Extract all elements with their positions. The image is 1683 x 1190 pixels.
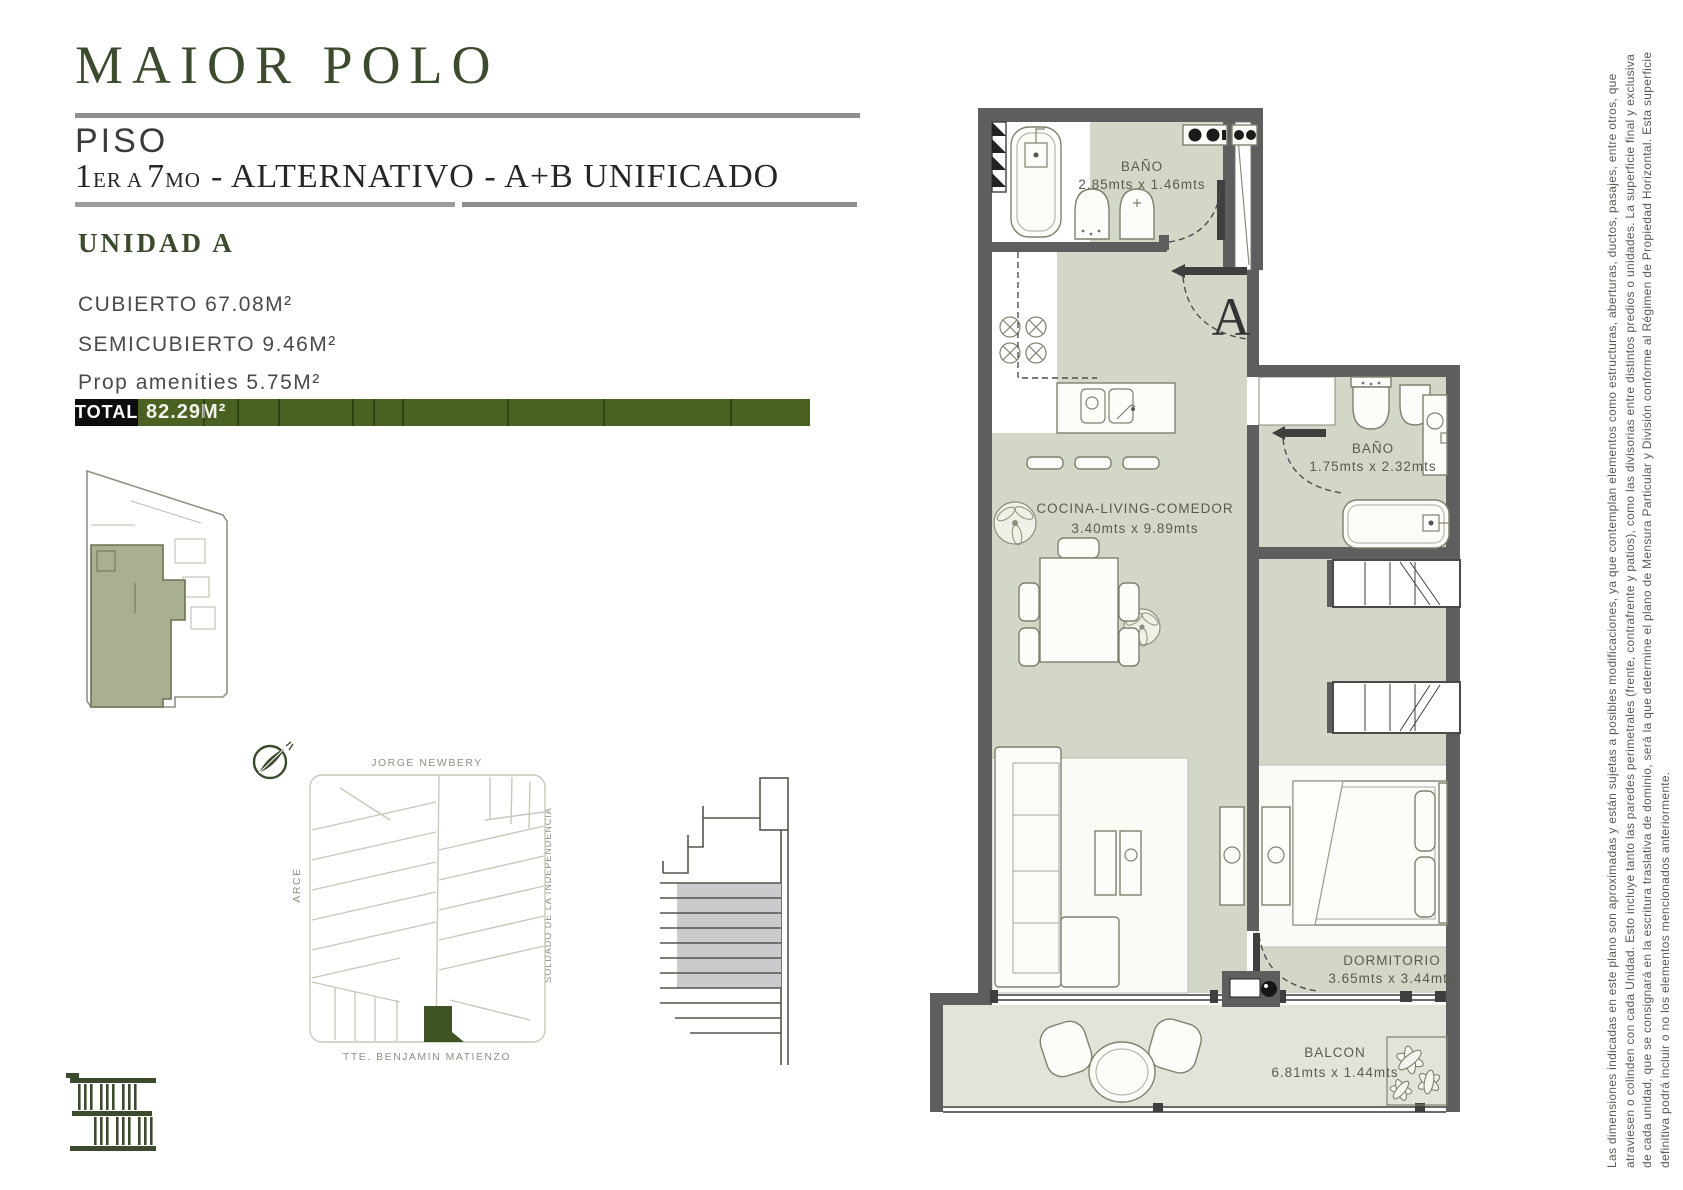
bar-separator (507, 399, 509, 426)
floor-plan: BAÑO 2.85mts x 1.46mts A (895, 85, 1470, 1130)
parcel-lines-bottom (312, 982, 400, 1041)
disclaimer-line: atraviesen o colinden con cada Unidad. E… (1622, 23, 1640, 1168)
kitchen-counter (992, 252, 1057, 433)
city-block (310, 775, 545, 1042)
bedroom-dims: 3.65mts x 3.44mts (1328, 971, 1455, 986)
disclaimer-line: de cada unidad, que se consignará en la … (1639, 23, 1657, 1168)
bar-separator (730, 399, 732, 426)
legal-disclaimer: Las dimensiones indicadas en este plano … (1604, 23, 1674, 1168)
bar-separator (402, 399, 404, 426)
unit-location-thumbnail (75, 455, 275, 745)
bath2-dims: 1.75mts x 2.32mts (1309, 459, 1436, 474)
section-right-wall (781, 830, 788, 1065)
stool (1027, 457, 1063, 469)
wardrobe (1333, 560, 1460, 607)
dining-table (1040, 558, 1118, 662)
chair (1119, 583, 1139, 621)
bedroom-label: DORMITORIO (1343, 953, 1441, 968)
street-top-label: JORGE NEWBERY (371, 757, 483, 769)
chair (1019, 583, 1039, 621)
logo-row2 (94, 1117, 153, 1145)
total-area-bar: TOTAL 82.29M² (75, 399, 810, 426)
chair (1119, 628, 1139, 666)
entry-door-leaf (1181, 267, 1247, 275)
toilet (1075, 189, 1109, 239)
service-shaft (992, 122, 1006, 192)
subtitle-divider-left (75, 202, 455, 207)
floor-range-subtitle: 1ER A7MO- ALTERNATIVO - A+B UNIFICADO (75, 158, 779, 196)
bath2-vestibule (1259, 377, 1335, 425)
laundry-appliances (1183, 125, 1257, 145)
bath1-label: BAÑO (1121, 159, 1163, 174)
kitchen-living-label: COCINA-LIVING-COMEDOR (1036, 501, 1233, 516)
wardrobe (1333, 682, 1460, 733)
disclaimer-line: Las dimensiones indicadas en este plano … (1604, 23, 1622, 1168)
stool (1123, 457, 1159, 469)
bar-separator (352, 399, 354, 426)
compass-icon (254, 742, 293, 778)
stool (1075, 457, 1111, 469)
bath1-dims: 2.85mts x 1.46mts (1078, 177, 1205, 192)
subtitle-divider-right (462, 202, 857, 207)
sofa-chaise (1061, 917, 1119, 987)
kitchen-island (1057, 383, 1175, 433)
section-steps (663, 818, 760, 873)
header-divider (75, 113, 860, 118)
section-tower (760, 778, 788, 830)
brand-title: MAIOR POLO (75, 34, 500, 96)
logo-row1 (78, 1084, 137, 1110)
bidet (1120, 189, 1154, 239)
bar-separator (203, 399, 205, 426)
kitchen-living-dims: 3.40mts x 9.89mts (1071, 521, 1198, 536)
unit-letter: A (1212, 287, 1251, 347)
disclaimer-line: definitiva podrá incluir o no los elemen… (1657, 23, 1675, 1168)
floor-label: PISO (75, 122, 168, 161)
total-label: TOTAL (75, 399, 138, 426)
floor-from-number: 1 (75, 158, 92, 195)
area-cubierto: CUBIERTO 67.08M² (78, 293, 293, 317)
floor-to-ordinal: MO (165, 168, 201, 192)
balcony-label: BALCON (1304, 1045, 1366, 1060)
balcony-table (1089, 1042, 1155, 1102)
bar-separator (603, 399, 605, 426)
balcony-railing (943, 1107, 1446, 1112)
parcel-lines-right (439, 777, 544, 1020)
toilet-tank (1351, 377, 1391, 387)
floor-to-number: 7 (147, 158, 164, 195)
project-lot (424, 1006, 464, 1042)
bath2-label: BAÑO (1352, 441, 1394, 456)
building-section-diagram (655, 770, 800, 1070)
floor-from-ordinal: ER A (93, 168, 143, 192)
street-bottom-label: TTE. BENJAMIN MATIENZO (343, 1051, 511, 1063)
bar-separator (237, 399, 239, 426)
headboard (1439, 783, 1447, 923)
balcony-dims: 6.81mts x 1.44mts (1271, 1065, 1398, 1080)
grill-unit (1222, 971, 1280, 1007)
pillow (1415, 857, 1435, 917)
total-value: 82.29M² (146, 399, 226, 426)
toilet (1353, 387, 1389, 429)
section-step-ticks (663, 806, 703, 873)
location-map: JORGE NEWBERY ARCE SOLDADO DE LA INDEPEN… (240, 720, 570, 1070)
unit-title: UNIDAD A (78, 228, 235, 259)
brand-logo-icon (58, 1068, 168, 1163)
plan-sheet: MAIOR POLO PISO 1ER A7MO- ALTERNATIVO - … (0, 0, 1683, 1190)
chair (1019, 628, 1039, 666)
chair (1058, 538, 1099, 558)
bar-separator (373, 399, 375, 426)
area-semicubierto: SEMICUBIERTO 9.46M² (78, 333, 337, 357)
area-amenities: Prop amenities 5.75M² (78, 371, 321, 395)
floor-range-rest: - ALTERNATIVO - A+B UNIFICADO (211, 158, 779, 195)
bar-separator (278, 399, 280, 426)
bath2-door-leaf (1280, 429, 1326, 437)
parcel-lines-left (312, 788, 436, 978)
pillow (1415, 791, 1435, 851)
street-left-label: ARCE (291, 867, 303, 902)
